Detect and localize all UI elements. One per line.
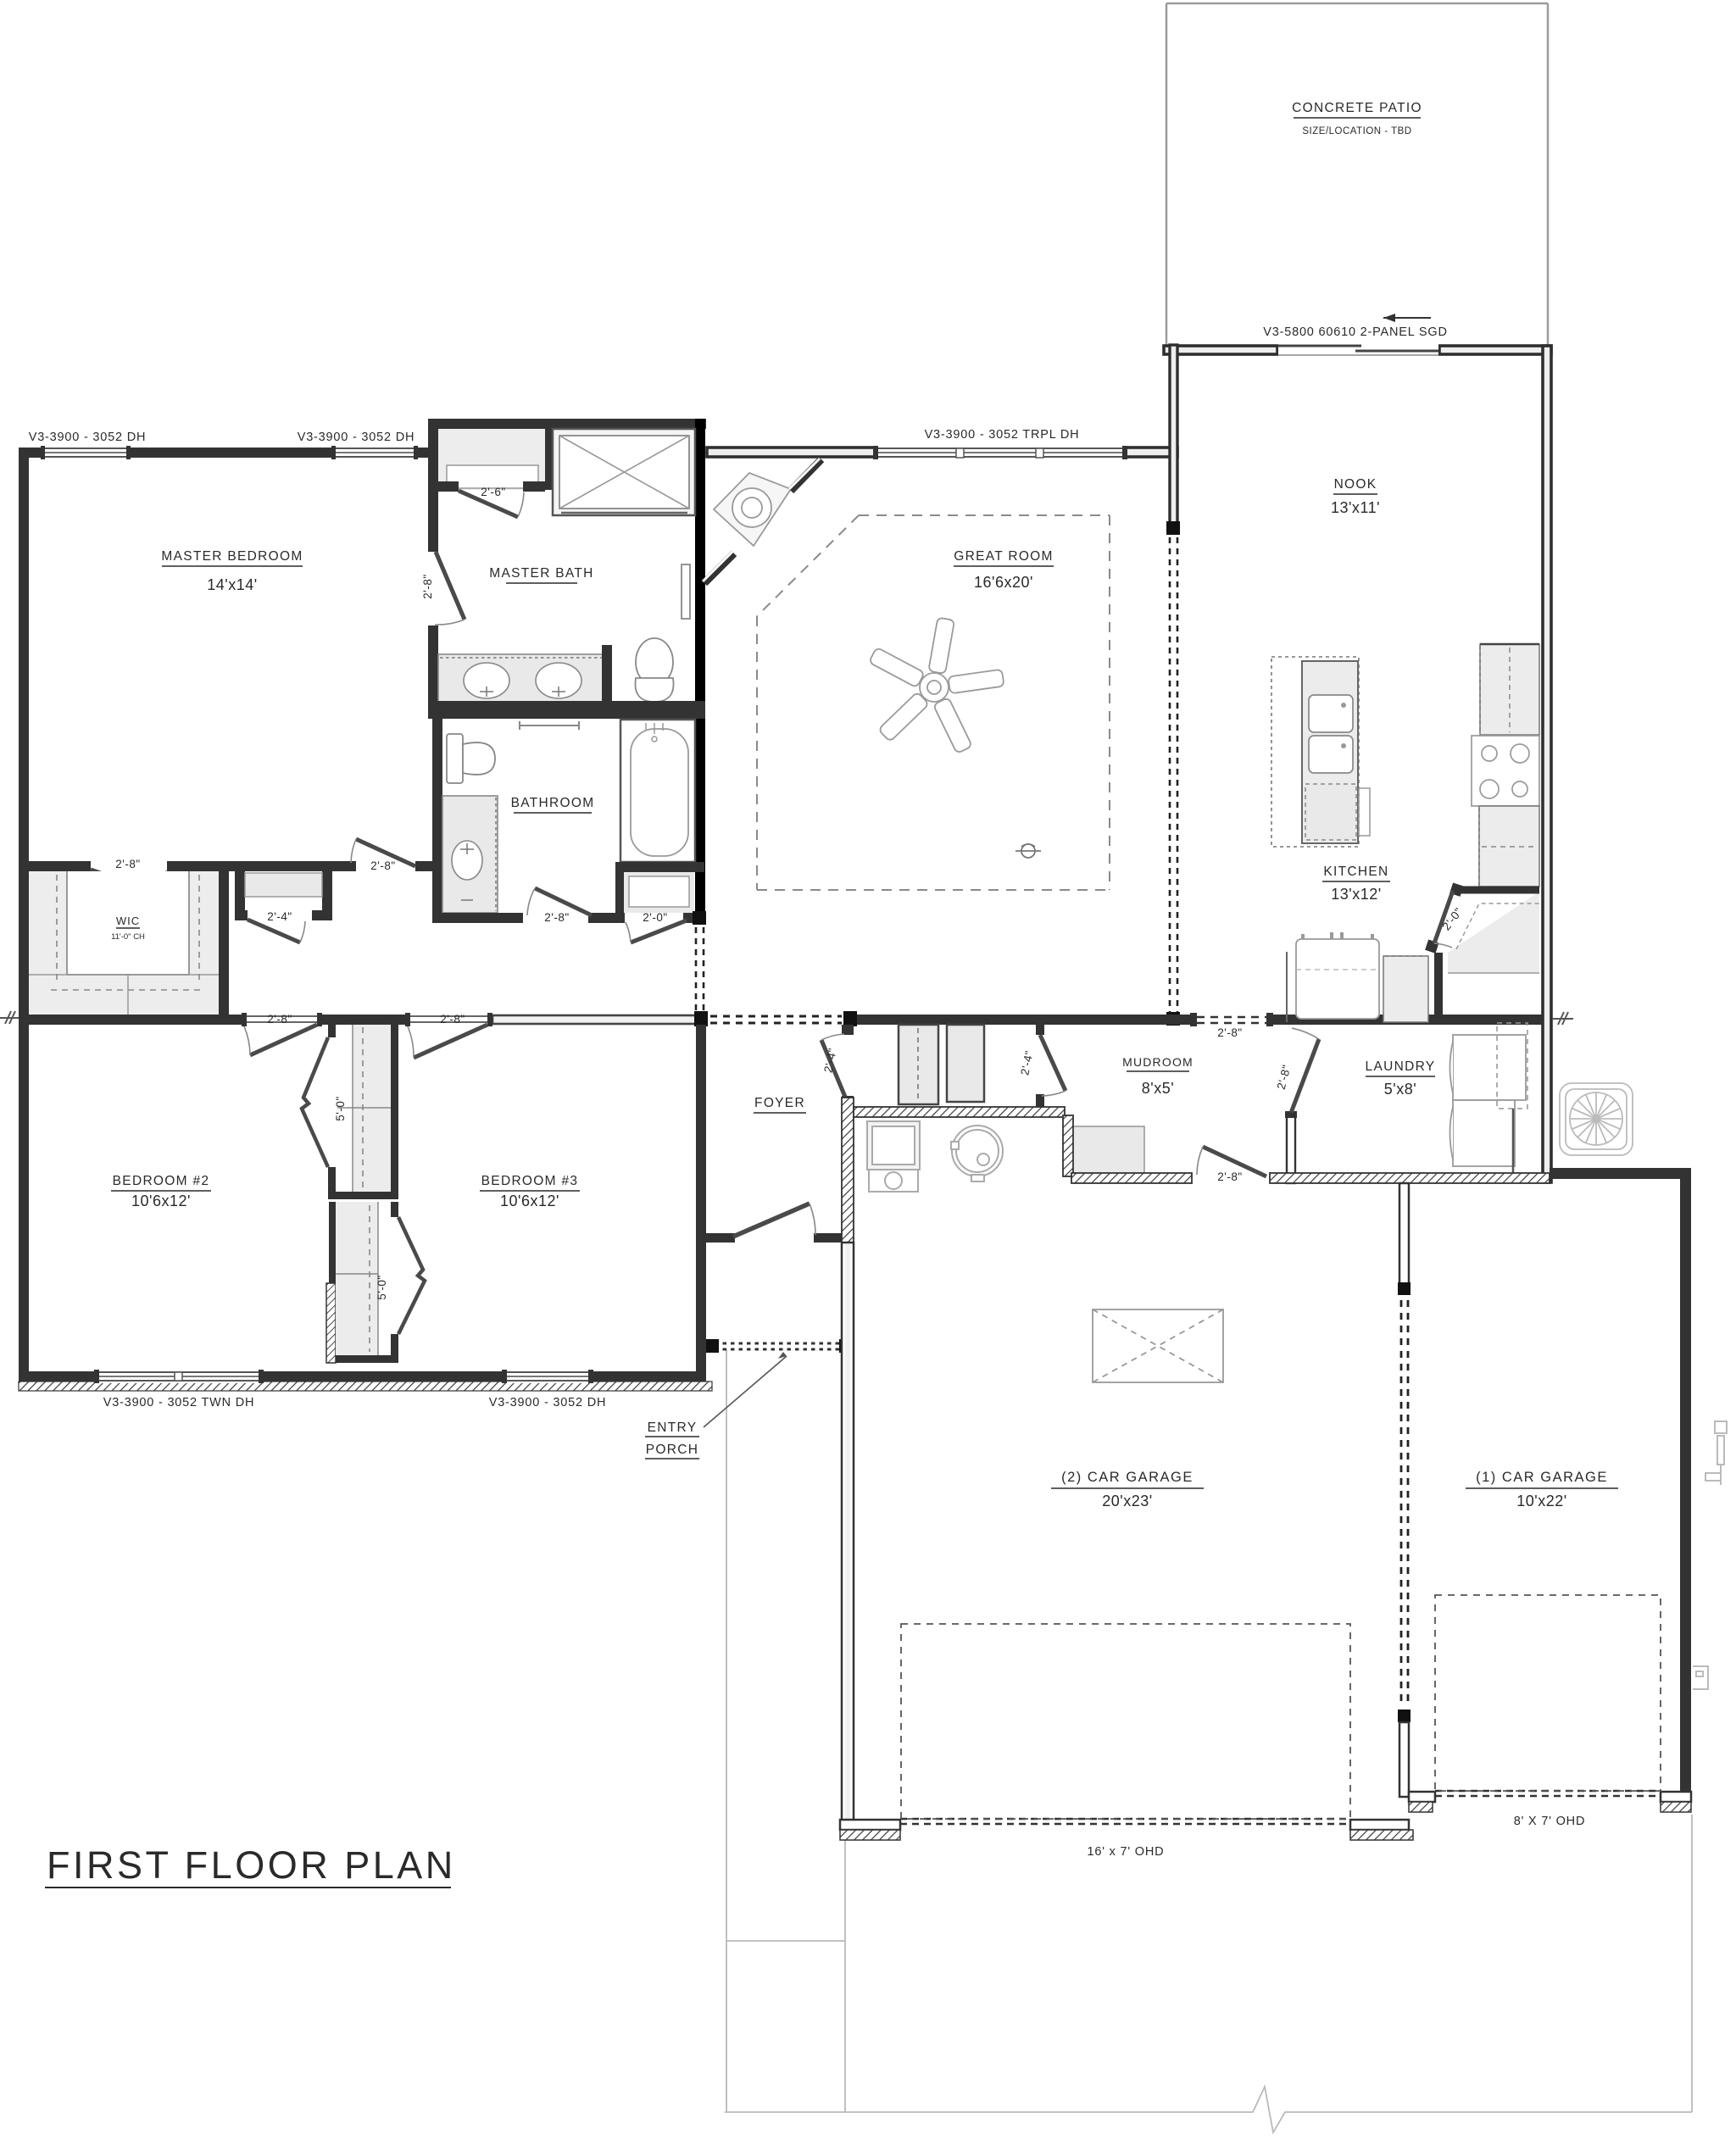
- svg-text:PORCH: PORCH: [646, 1443, 698, 1457]
- svg-text:MUDROOM: MUDROOM: [1122, 1055, 1193, 1069]
- svg-text:(2) CAR GARAGE: (2) CAR GARAGE: [1061, 1470, 1193, 1485]
- svg-text:10'x22': 10'x22': [1516, 1493, 1566, 1509]
- svg-text:13'x12': 13'x12': [1331, 886, 1381, 903]
- svg-text:(1) CAR GARAGE: (1) CAR GARAGE: [1476, 1470, 1608, 1485]
- svg-text:ENTRY: ENTRY: [648, 1420, 698, 1435]
- svg-text:WIC: WIC: [116, 915, 140, 927]
- svg-text:FIRST FLOOR PLAN: FIRST FLOOR PLAN: [47, 1843, 456, 1887]
- svg-text:2'-4": 2'-4": [267, 910, 292, 923]
- svg-text:FOYER: FOYER: [754, 1096, 805, 1110]
- svg-text:16'6x20': 16'6x20': [974, 574, 1033, 591]
- svg-text:5'-0": 5'-0": [334, 1096, 347, 1120]
- svg-text:14'x14': 14'x14': [207, 576, 257, 593]
- svg-text:BEDROOM #3: BEDROOM #3: [481, 1174, 579, 1188]
- svg-text:2'-8": 2'-8": [544, 911, 569, 924]
- svg-text:2'-8": 2'-8": [370, 859, 395, 872]
- svg-text:8'x5': 8'x5': [1142, 1080, 1174, 1097]
- svg-text:10'6x12': 10'6x12': [131, 1193, 191, 1209]
- svg-text:NOOK: NOOK: [1334, 477, 1377, 492]
- svg-text:BEDROOM #2: BEDROOM #2: [113, 1174, 210, 1188]
- svg-text:LAUNDRY: LAUNDRY: [1366, 1059, 1436, 1074]
- svg-text:V3-3900 - 3052 DH: V3-3900 - 3052 DH: [29, 431, 147, 444]
- svg-text:16' x 7' OHD: 16' x 7' OHD: [1088, 1845, 1165, 1859]
- svg-text:CONCRETE PATIO: CONCRETE PATIO: [1292, 101, 1422, 115]
- svg-text:SIZE/LOCATION - TBD: SIZE/LOCATION - TBD: [1302, 126, 1411, 136]
- svg-text:11'-0" CH: 11'-0" CH: [111, 932, 145, 942]
- svg-text:8' X 7' OHD: 8' X 7' OHD: [1514, 1815, 1585, 1828]
- svg-text:2'-8": 2'-8": [440, 1013, 465, 1026]
- svg-text:V3-3900 - 3052 TWN DH: V3-3900 - 3052 TWN DH: [103, 1396, 255, 1409]
- svg-text:2'-8": 2'-8": [115, 858, 140, 870]
- svg-text:V3-3900 - 3052 DH: V3-3900 - 3052 DH: [489, 1396, 607, 1409]
- svg-text:2'-0": 2'-0": [643, 911, 667, 924]
- svg-text:13'x11': 13'x11': [1331, 499, 1380, 516]
- svg-text:5'x8': 5'x8': [1384, 1081, 1416, 1098]
- svg-text:KITCHEN: KITCHEN: [1323, 865, 1388, 879]
- svg-text:20'x23': 20'x23': [1102, 1493, 1152, 1509]
- svg-text:V3-3900 - 3052 TRPL DH: V3-3900 - 3052 TRPL DH: [925, 428, 1080, 442]
- svg-text:V3-3900 - 3052 DH: V3-3900 - 3052 DH: [298, 431, 415, 444]
- svg-text:2'-8": 2'-8": [1217, 1170, 1242, 1183]
- svg-text:2'-8": 2'-8": [267, 1013, 292, 1026]
- svg-text:MASTER BATH: MASTER BATH: [489, 566, 593, 581]
- svg-text:5'-0": 5'-0": [376, 1275, 388, 1299]
- svg-text:2'-8": 2'-8": [1217, 1026, 1242, 1039]
- svg-text:GREAT ROOM: GREAT ROOM: [954, 549, 1054, 564]
- svg-text:2'-6": 2'-6": [481, 486, 505, 498]
- svg-text:BATHROOM: BATHROOM: [511, 796, 595, 810]
- svg-text:MASTER BEDROOM: MASTER BEDROOM: [161, 549, 303, 564]
- svg-text:10'6x12': 10'6x12': [500, 1193, 559, 1209]
- svg-text:2'-8": 2'-8": [421, 574, 434, 598]
- svg-text:V3-5800 60610 2-PANEL SGD: V3-5800 60610 2-PANEL SGD: [1263, 325, 1447, 339]
